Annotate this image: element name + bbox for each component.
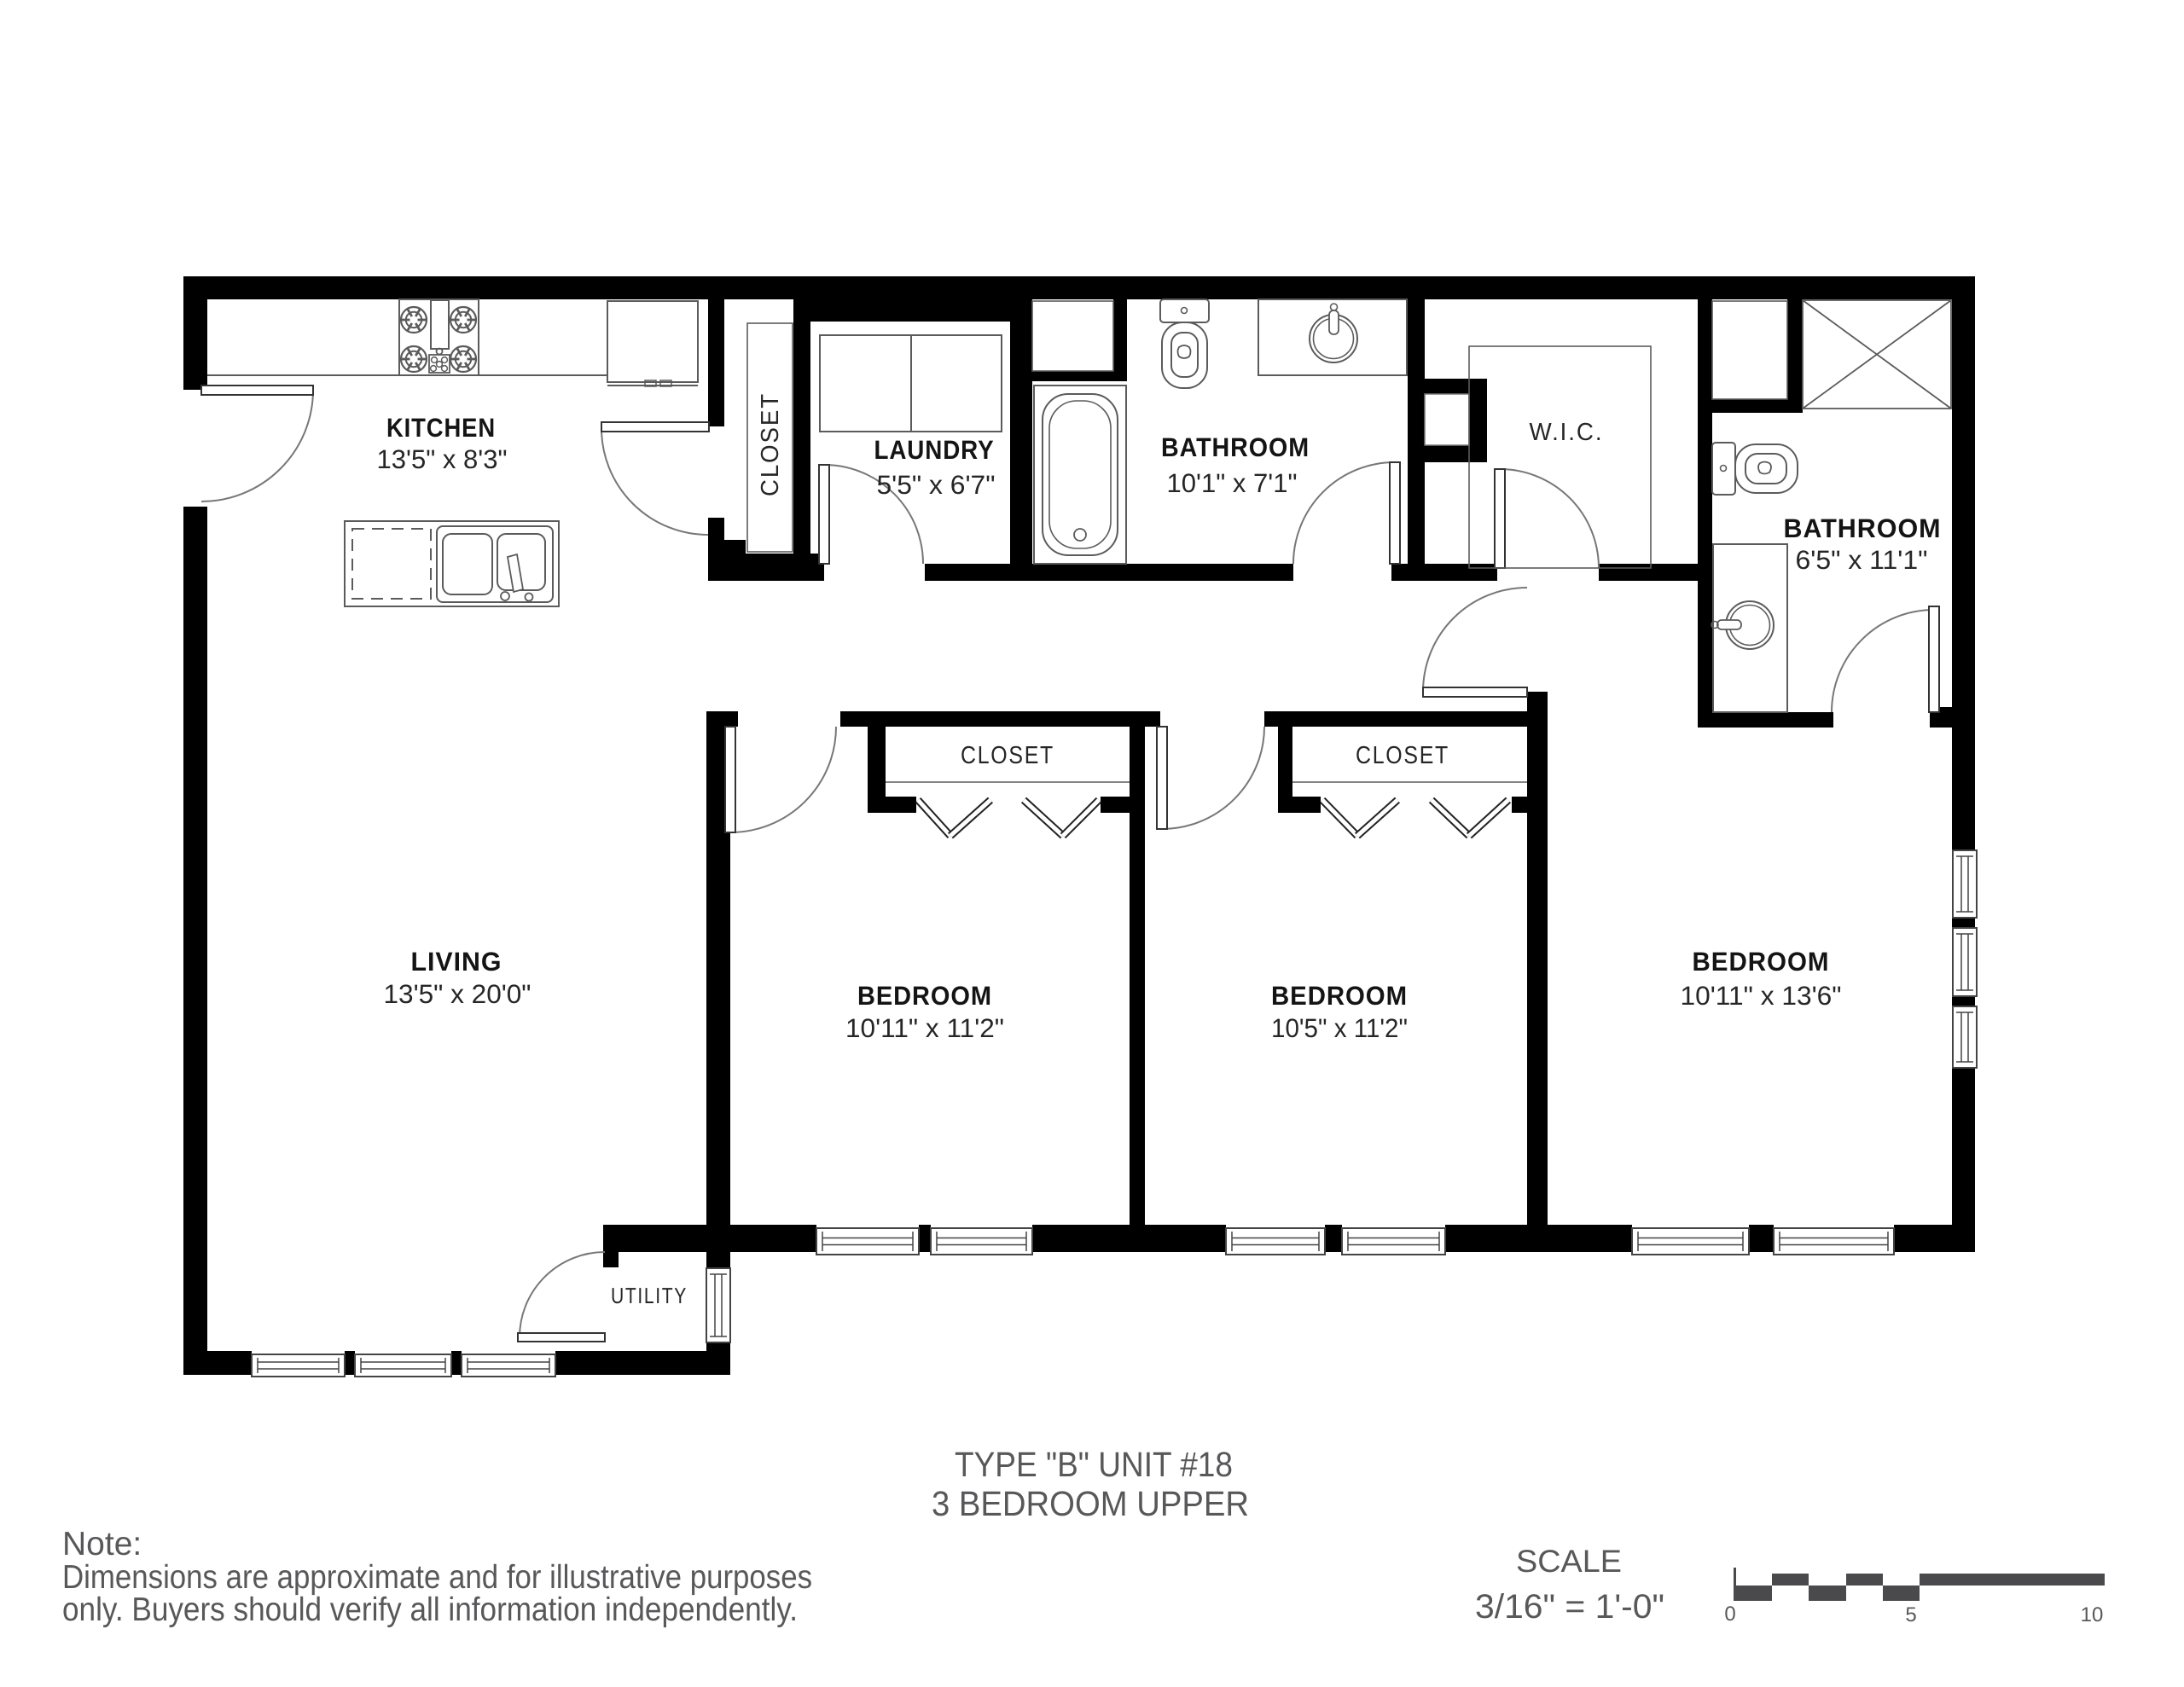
svg-text:3/16" = 1'-0": 3/16" = 1'-0"	[1475, 1588, 1664, 1626]
svg-text:KITCHEN: KITCHEN	[386, 413, 496, 443]
svg-text:BEDROOM: BEDROOM	[857, 981, 992, 1011]
svg-text:10: 10	[2081, 1603, 2104, 1626]
svg-text:3 BEDROOM UPPER: 3 BEDROOM UPPER	[932, 1484, 1249, 1523]
svg-text:BEDROOM: BEDROOM	[1693, 947, 1830, 977]
svg-text:BEDROOM: BEDROOM	[1271, 981, 1408, 1011]
svg-text:6'5" x 11'1": 6'5" x 11'1"	[1796, 545, 1928, 575]
svg-text:only. Buyers should verify all: only. Buyers should verify all informati…	[62, 1591, 798, 1628]
svg-text:CLOSET: CLOSET	[1356, 742, 1449, 769]
svg-text:0: 0	[1724, 1603, 1735, 1626]
svg-text:10'1" x 7'1": 10'1" x 7'1"	[1167, 468, 1298, 498]
svg-text:LAUNDRY: LAUNDRY	[874, 435, 995, 465]
svg-text:Dimensions are approximate and: Dimensions are approximate and for illus…	[62, 1559, 812, 1596]
svg-text:5: 5	[1905, 1603, 1916, 1626]
svg-text:Note:: Note:	[62, 1526, 142, 1562]
svg-text:UTILITY: UTILITY	[611, 1283, 688, 1308]
svg-text:TYPE "B" UNIT #18: TYPE "B" UNIT #18	[955, 1445, 1233, 1484]
svg-text:SCALE: SCALE	[1516, 1544, 1622, 1579]
svg-text:10'5" x 11'2": 10'5" x 11'2"	[1271, 1013, 1408, 1043]
svg-text:13'5" x 8'3": 13'5" x 8'3"	[377, 444, 508, 474]
svg-text:10'11" x 11'2": 10'11" x 11'2"	[845, 1013, 1004, 1043]
svg-text:CLOSET: CLOSET	[961, 742, 1054, 769]
svg-text:13'5" x 20'0": 13'5" x 20'0"	[384, 979, 531, 1009]
svg-text:W.I.C.: W.I.C.	[1530, 419, 1604, 446]
svg-text:LIVING: LIVING	[411, 947, 502, 977]
svg-text:10'11" x 13'6": 10'11" x 13'6"	[1681, 981, 1842, 1011]
svg-text:5'5" x 6'7": 5'5" x 6'7"	[877, 470, 996, 500]
svg-text:CLOSET: CLOSET	[757, 392, 784, 496]
svg-text:BATHROOM: BATHROOM	[1161, 432, 1310, 462]
svg-text:BATHROOM: BATHROOM	[1784, 513, 1942, 543]
